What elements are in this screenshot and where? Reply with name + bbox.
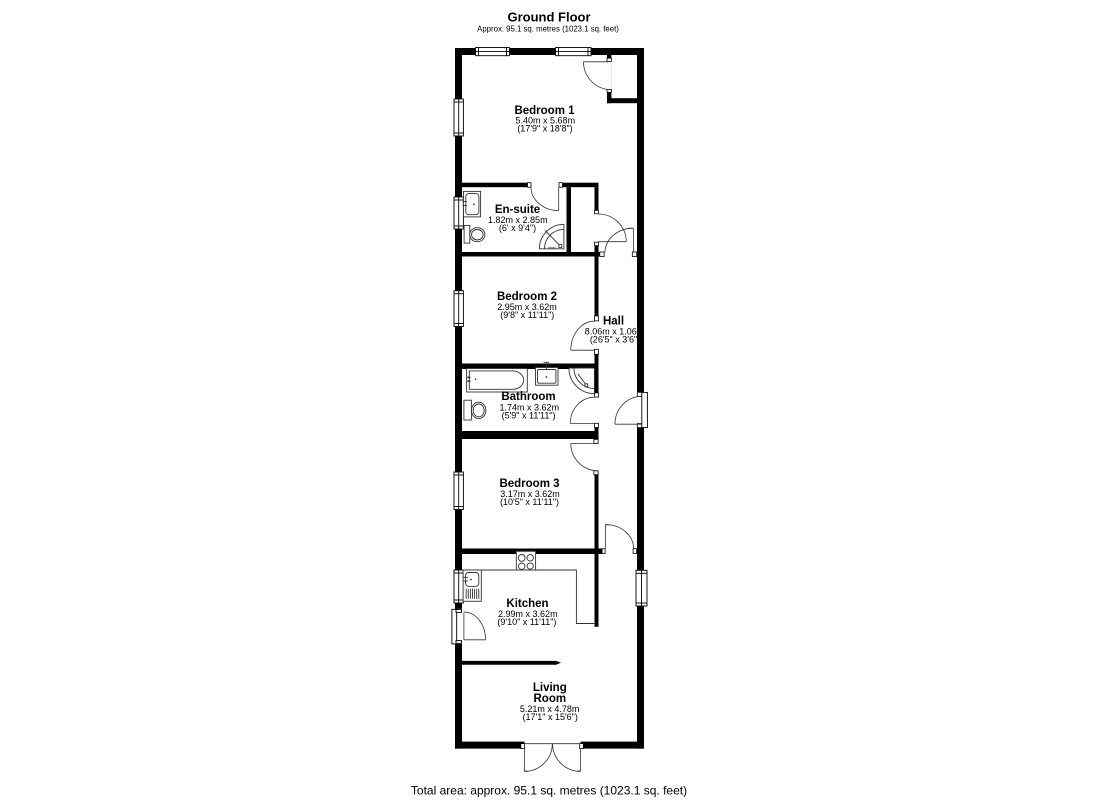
svg-text:Bathroom: Bathroom xyxy=(501,391,555,403)
svg-text:(10'5" x 11'11"): (10'5" x 11'11") xyxy=(500,497,559,507)
svg-text:Ground Floor: Ground Floor xyxy=(507,9,590,24)
svg-text:(9'10" x 11'11"): (9'10" x 11'11") xyxy=(497,617,556,627)
svg-text:(6' x 9'4"): (6' x 9'4") xyxy=(499,223,536,233)
svg-text:Approx. 95.1 sq. metres (1023.: Approx. 95.1 sq. metres (1023.1 sq. feet… xyxy=(477,24,619,33)
svg-text:Hall: Hall xyxy=(603,316,624,328)
svg-text:(17'9" x 18'8"): (17'9" x 18'8") xyxy=(517,123,572,133)
svg-text:(5'9" x 11'11"): (5'9" x 11'11") xyxy=(502,411,556,421)
svg-text:(9'8" x 11'11"): (9'8" x 11'11") xyxy=(500,310,554,320)
svg-text:(26'5" x 3'6"): (26'5" x 3'6") xyxy=(590,334,640,344)
svg-text:(17'1" x 15'6"): (17'1" x 15'6") xyxy=(523,712,578,722)
svg-text:Total area: approx. 95.1 sq. m: Total area: approx. 95.1 sq. metres (102… xyxy=(411,784,687,798)
